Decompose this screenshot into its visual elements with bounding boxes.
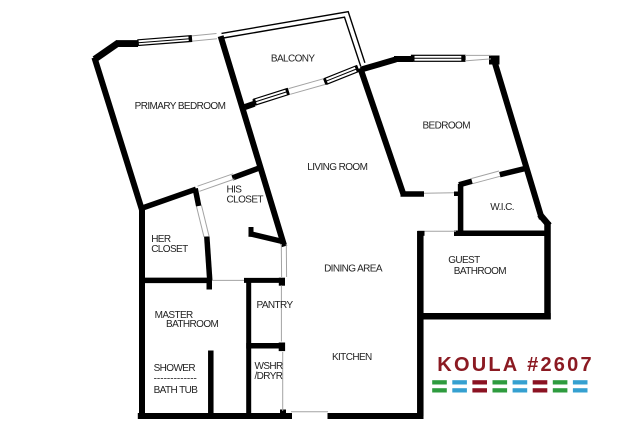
svg-text:CLOSET: CLOSET	[151, 244, 188, 255]
svg-text:CLOSET: CLOSET	[227, 194, 264, 205]
svg-text:/DRYR: /DRYR	[255, 371, 283, 382]
svg-text:KITCHEN: KITCHEN	[332, 352, 372, 363]
svg-text:BEDROOM: BEDROOM	[422, 121, 470, 132]
svg-text:BALCONY: BALCONY	[271, 54, 316, 65]
svg-text:DINING AREA: DINING AREA	[324, 263, 383, 274]
svg-text:SHOWER: SHOWER	[154, 363, 196, 374]
svg-text:W.I.C.: W.I.C.	[490, 202, 514, 213]
svg-text:BATHROOM: BATHROOM	[454, 266, 507, 277]
svg-text:PRIMARY BEDROOM: PRIMARY BEDROOM	[135, 101, 226, 112]
svg-text:GUEST: GUEST	[448, 255, 480, 266]
svg-text:PANTRY: PANTRY	[257, 300, 294, 311]
svg-text:BATHROOM: BATHROOM	[166, 319, 219, 330]
svg-text:LIVING ROOM: LIVING ROOM	[307, 162, 367, 173]
svg-text:BATH TUB: BATH TUB	[154, 385, 199, 396]
svg-text:-------------: -------------	[154, 374, 197, 385]
svg-text:KOULA #2607: KOULA #2607	[437, 354, 593, 376]
